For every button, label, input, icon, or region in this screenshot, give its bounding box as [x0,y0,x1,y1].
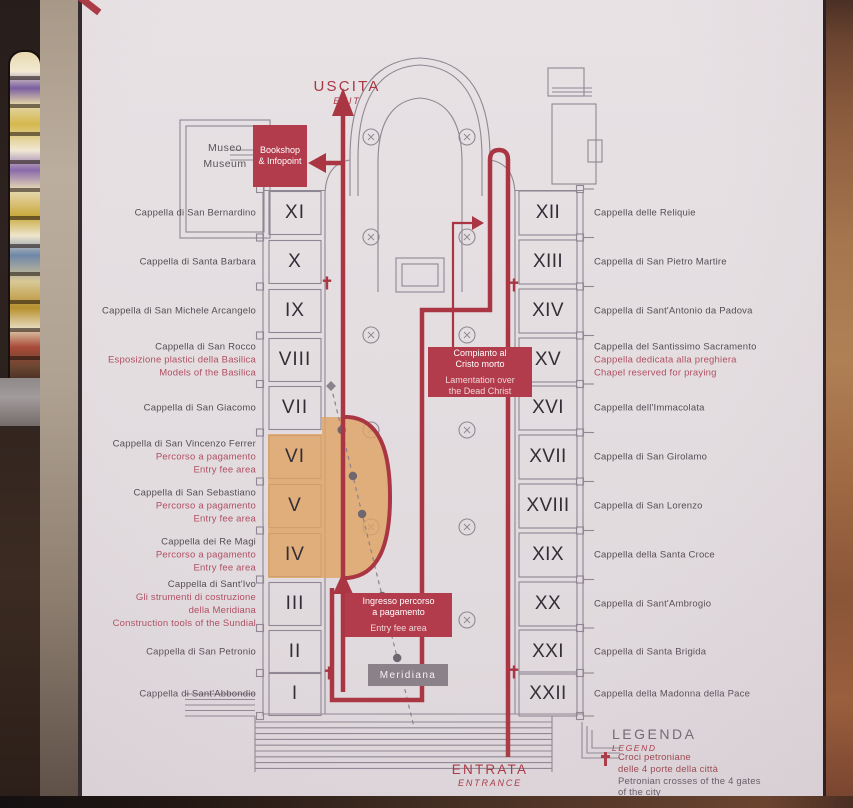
chapel-numeral: V [265,495,325,517]
chapel-label: Cappella dei Re MagiPercorso a pagamento… [84,536,256,575]
legend: LEGENDA LEGEND [612,726,696,753]
chapel-name: Cappella di San Bernardino [84,207,256,220]
bookshop-arrowhead [308,153,326,173]
chapel-numeral: X [265,251,325,273]
chapel-label: Cappella di San Vincenzo FerrerPercorso … [84,438,256,477]
legend-cross-text-it: Croci petroniane delle 4 porte della cit… [618,752,718,775]
chapel-sublabel: Cappella dedicata alla preghiera Chapel … [594,354,819,380]
chapel-numeral: IX [265,300,325,322]
bookshop-infopoint-box: Bookshop & Infopoint [253,125,307,187]
chapel-label: Cappella di San Petronio [84,646,256,659]
chapel-name: Cappella di San Giacomo [84,402,256,415]
chapel-label: Cappella di San Bernardino [84,207,256,220]
chapel-name: Cappella di San Sebastiano [84,487,256,500]
chapel-name: Cappella delle Reliquie [594,207,819,220]
basilica-floor-plan-sign: USCITA EXIT ENTRATA ENTRANCE Museo Museu… [82,0,823,796]
entrance-label: ENTRATA ENTRANCE [430,762,550,788]
chapel-name: Cappella di San Pietro Martire [594,256,819,269]
chapel-numeral: XV [518,349,578,371]
chapel-numeral: IV [265,544,325,566]
chapel-numeral: XVI [518,397,578,419]
chapel-numeral: VII [265,397,325,419]
chapel-numeral: XIV [518,300,578,322]
chapel-label: Cappella di San Michele Arcangelo [84,305,256,318]
stained-glass-window [8,50,42,382]
dark-pillar [0,426,42,796]
chapel-label: Cappella dell'Immacolata [594,402,819,415]
chapel-name: Cappella di Santa Brigida [594,646,819,659]
chapel-numeral: XX [518,593,578,615]
sign-board-side-edge [40,0,78,796]
petronian-cross-icon [510,279,518,292]
chapel-label: Cappella di San Girolamo [594,451,819,464]
chapel-name: Cappella di Sant'Antonio da Padova [594,305,819,318]
chapel-name: Cappella di Sant'Ivo [84,578,256,591]
chapel-name: Cappella di San Rocco [84,341,256,354]
chapel-label: Cappella di Sant'Abbondio [84,688,256,701]
chapel-numeral: I [265,683,325,705]
chapel-sublabel: Percorso a pagamento Entry fee area [84,451,256,477]
compianto-arrowhead [472,216,484,230]
petronian-cross-icon [510,666,518,679]
chapel-name: Cappella della Santa Croce [594,549,819,562]
chapel-sublabel: Gli strumenti di costruzione della Merid… [84,591,256,630]
chapel-label: Cappella del Santissimo SacramentoCappel… [594,341,819,380]
chapel-name: Cappella del Santissimo Sacramento [594,341,819,354]
chapel-name: Cappella di Sant'Ambrogio [594,598,819,611]
photo-of-basilica-map-sign: USCITA EXIT ENTRATA ENTRANCE Museo Museu… [0,0,853,808]
chapel-label: Cappella di Sant'Ambrogio [594,598,819,611]
chapel-numeral: VI [265,446,325,468]
chapel-numeral: III [265,593,325,615]
fee-entrance-box: Ingresso percorso a pagamento Entry fee … [345,593,452,637]
church-interior-background [0,0,82,796]
chapel-name: Cappella di San Vincenzo Ferrer [84,438,256,451]
chapel-numeral: VIII [265,349,325,371]
legend-cross-icon [600,752,611,766]
chapel-name: Cappella della Madonna della Pace [594,688,819,701]
chapel-label: Cappella di Santa Brigida [594,646,819,659]
chapel-numeral: XIX [518,544,578,566]
exit-label: USCITA EXIT [297,78,397,106]
chapel-name: Cappella di Sant'Abbondio [84,688,256,701]
chapel-label: Cappella di San Giacomo [84,402,256,415]
chapel-name: Cappella dell'Immacolata [594,402,819,415]
facade-steps [185,694,620,772]
chapel-label: Cappella della Santa Croce [594,549,819,562]
chapel-label: Cappella della Madonna della Pace [594,688,819,701]
chapel-sublabel: Percorso a pagamento Entry fee area [84,500,256,526]
stone-ledge [0,378,42,426]
chapel-label: Cappella di Santa Barbara [84,256,256,269]
chapel-numeral: XIII [518,251,578,273]
chapel-sublabel: Percorso a pagamento Entry fee area [84,549,256,575]
chapel-label: Cappella di Sant'Antonio da Padova [594,305,819,318]
chapel-label: Cappella di San Lorenzo [594,500,819,513]
chapel-label: Cappella delle Reliquie [594,207,819,220]
chapel-name: Cappella dei Re Magi [84,536,256,549]
meridiana-label-box: Meridiana [368,664,448,686]
chapel-name: Cappella di San Lorenzo [594,500,819,513]
chapel-name: Cappella di San Petronio [84,646,256,659]
chapel-numeral: XXI [518,641,578,663]
chapel-numeral: XII [518,202,578,224]
chapel-label: Cappella di Sant'IvoGli strumenti di cos… [84,578,256,630]
chapel-label: Cappella di San RoccoEsposizione plastic… [84,341,256,380]
chapel-name: Cappella di San Girolamo [594,451,819,464]
chapel-numeral: XVII [518,446,578,468]
chapel-numeral: XXII [518,683,578,705]
wood-column-background [823,0,853,796]
chapel-numeral: XI [265,202,325,224]
petronian-cross-icon [323,277,331,290]
legend-cross-text-en: Petronian crosses of the 4 gates of the … [618,776,761,798]
chapel-label: Cappella di San Pietro Martire [594,256,819,269]
lamentation-box: Compianto al Cristo morto Lamentation ov… [428,347,532,397]
chapel-numeral: II [265,641,325,663]
chapel-name: Cappella di Santa Barbara [84,256,256,269]
chapel-name: Cappella di San Michele Arcangelo [84,305,256,318]
chapel-label: Cappella di San SebastianoPercorso a pag… [84,487,256,526]
chapel-sublabel: Esposizione plastici della Basilica Mode… [84,354,256,380]
chapel-numeral: XVIII [518,495,578,517]
floor-plan-drawing [82,0,823,796]
